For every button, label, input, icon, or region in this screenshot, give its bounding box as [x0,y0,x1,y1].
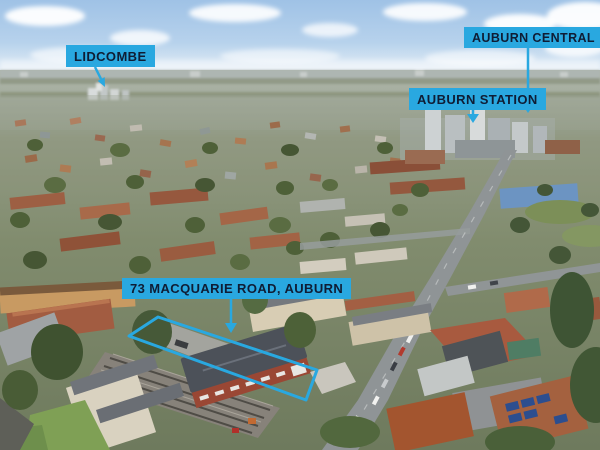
location-label-auburn-station: AUBURN STATION [409,88,546,110]
pointer-arrow-icon [467,114,479,123]
aerial-annotation-scene: LIDCOMBE AUBURN CENTRAL AUBURN STATION 7… [0,0,600,450]
location-label-lidcombe: LIDCOMBE [66,45,155,67]
pointer-line [95,67,101,79]
pointer-arrow-icon [225,323,237,333]
annotation-overlay [0,0,600,450]
location-label-auburn-central: AUBURN CENTRAL [464,27,600,48]
property-boundary-outline [129,317,317,400]
property-address-label: 73 MACQUARIE ROAD, AUBURN [122,278,351,299]
